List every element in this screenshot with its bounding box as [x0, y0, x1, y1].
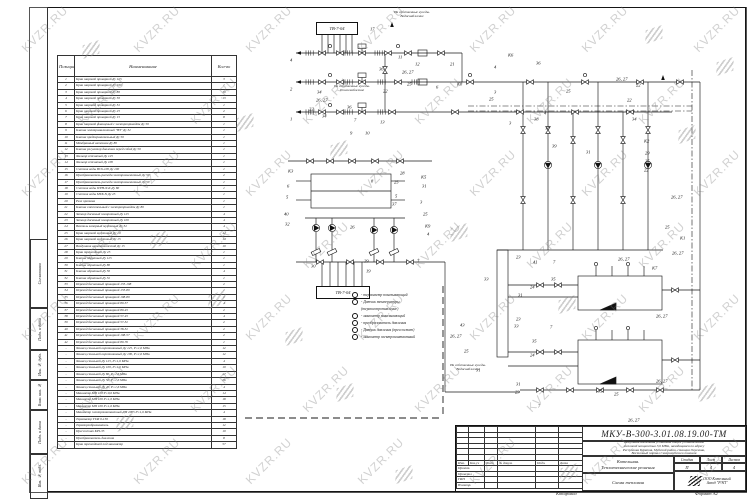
position-label: 25	[665, 225, 670, 230]
sheet-value: 4	[700, 463, 722, 471]
position-label: 26, 27	[316, 98, 327, 103]
position-label: 25	[423, 212, 428, 217]
position-label: 23	[516, 255, 521, 260]
position-label: 23	[516, 317, 521, 322]
position-label: 41	[533, 260, 538, 265]
position-label: 4	[544, 111, 546, 116]
footer-copied: Копировал	[556, 491, 577, 496]
position-label: 26, 27	[656, 379, 667, 384]
position-label: 35	[551, 277, 556, 282]
position-label: 9	[350, 131, 352, 136]
stage-header: Стадия	[674, 456, 700, 463]
position-label: 24	[530, 285, 535, 290]
position-label: 4	[427, 232, 429, 237]
tv-box-top: ТВ-7-04	[316, 22, 358, 35]
position-label: 6	[436, 85, 438, 90]
position-label: 25	[566, 89, 571, 94]
position-label: 35	[532, 339, 537, 344]
position-label: 33	[514, 324, 519, 329]
position-label: К8	[457, 82, 462, 87]
position-label: 31	[586, 150, 591, 155]
position-label: 34	[317, 90, 322, 95]
position-label: 13	[380, 120, 385, 125]
company-name: ООО Котельный Завод "РЭП"	[703, 477, 731, 486]
note-own-needs-water-top: На собственные нужды. Водоснабжение	[382, 11, 442, 18]
revision-stamp: Изм.Кол.учЛист№ докум.Подп.ДатаПроект.Пр…	[456, 426, 583, 489]
project-description: Модульная котельная установка общей уста…	[582, 441, 746, 456]
position-label: 7	[553, 260, 555, 265]
sheet-header: Лист	[700, 456, 722, 463]
position-label: 22	[644, 168, 649, 173]
position-label: 12	[415, 62, 420, 67]
legend-symbol-icon	[352, 313, 358, 319]
position-label: 11	[398, 55, 402, 60]
position-label: 36	[379, 67, 384, 72]
position-label: 25	[464, 349, 469, 354]
position-label: К9	[425, 224, 430, 229]
sheets-value: 4	[722, 463, 746, 471]
position-label: 25	[394, 180, 399, 185]
position-label: 23	[515, 390, 520, 395]
position-label: 3	[494, 90, 496, 95]
legend-item: - преобразователь давления	[352, 319, 472, 326]
position-label: 1	[290, 117, 292, 122]
position-label: 38	[534, 117, 539, 122]
position-label: 22	[627, 98, 632, 103]
position-label: 34	[322, 114, 327, 119]
position-label: 22	[636, 83, 641, 88]
position-label: 7	[550, 325, 552, 330]
position-label: 29	[645, 151, 650, 156]
position-label: 3	[420, 200, 422, 205]
legend-item: - манометр электроконтактный	[352, 333, 472, 340]
position-label: 30	[311, 264, 316, 269]
legend-symbol-icon	[352, 334, 358, 340]
position-label: 6	[287, 184, 289, 189]
position-label: 28	[400, 171, 405, 176]
legend-symbol-icon	[352, 299, 358, 305]
company-cell: ООО Котельный Завод "РЭП"	[674, 471, 746, 491]
instrument-legend: - термометр показывающий- Датчик темпера…	[352, 291, 472, 340]
sheets-header: Листов	[722, 456, 746, 463]
legend-item: - Датчик давления (прессостат)	[352, 326, 472, 333]
object-name: Котельная. Теплотехнические решения	[582, 456, 674, 473]
position-label: 26, 27	[656, 314, 667, 319]
legend-symbol-icon	[352, 327, 358, 333]
legend-symbol-icon	[352, 320, 358, 326]
position-label: 36	[536, 61, 541, 66]
position-label: К3	[288, 169, 293, 174]
position-label: 4	[494, 65, 496, 70]
position-label: 24	[530, 353, 535, 358]
position-label: 35	[598, 389, 603, 394]
position-label: 19	[366, 269, 371, 274]
stamp-signature-row: Н.контр.	[457, 482, 583, 488]
drawing-sheet: СогласованоПодп. и датаИнв. № дубл.Взам.…	[0, 0, 750, 500]
position-label: 26, 27	[618, 257, 629, 262]
position-label: 25	[489, 97, 494, 102]
position-label: 22	[383, 89, 388, 94]
stage-value: П	[674, 463, 700, 471]
position-label: К5	[421, 175, 426, 180]
legend-item: - манометр показывающий	[352, 312, 472, 319]
position-label: 36	[347, 105, 352, 110]
position-label: 10	[365, 131, 370, 136]
position-label: К6	[508, 53, 513, 58]
note-own-needs-heat: На собственные нужды. Теплоснабжение	[326, 85, 378, 92]
title-block: Изм.Кол.учЛист№ докум.Подп.ДатаПроект.Пр…	[455, 425, 747, 492]
position-label: 22	[309, 107, 314, 112]
position-label: 34	[632, 117, 637, 122]
position-label: 29	[364, 259, 369, 264]
position-label: 7	[354, 118, 356, 123]
position-label: 18	[545, 126, 550, 131]
position-label: 31	[476, 368, 481, 373]
position-label: 26, 27	[616, 77, 627, 82]
legend-item: - Датчик температуры	[352, 298, 472, 305]
position-label: 7	[417, 259, 419, 264]
position-label: 31	[516, 382, 521, 387]
position-label: 26, 27	[628, 418, 639, 423]
note-own-needs-water-bottom: На собственные нужды. Водоснабжение	[440, 364, 496, 371]
position-label: 31	[422, 184, 427, 189]
legend-symbol-icon	[352, 292, 358, 298]
sheet-title: Схема тепловая	[582, 473, 674, 491]
position-label: 26, 27	[402, 70, 413, 75]
position-label: 3	[509, 121, 511, 126]
footer-format: Формат А2	[695, 491, 718, 496]
position-label: 26	[350, 225, 355, 230]
position-label: 40	[284, 212, 289, 217]
position-label: К7	[652, 266, 657, 271]
position-label: 26, 27	[671, 195, 682, 200]
position-label: 37	[392, 202, 397, 207]
position-label: 25	[407, 82, 412, 87]
position-label: 26, 27	[672, 251, 683, 256]
position-label: 25	[614, 392, 619, 397]
doc-number: МКУ-В-300-3.01.08.19.00-ТМ	[582, 426, 746, 441]
position-label: 17	[370, 27, 375, 32]
position-label: К1	[680, 236, 685, 241]
position-label: 39	[552, 144, 557, 149]
position-label: 31	[518, 293, 523, 298]
position-label: 32	[285, 222, 290, 227]
legend-item: (термосопротивление)	[352, 305, 472, 312]
company-logo-icon	[688, 476, 703, 486]
legend-item: - термометр показывающий	[352, 291, 472, 298]
position-label: 4	[290, 58, 292, 63]
position-label: К2	[644, 139, 649, 144]
position-label: 7	[538, 404, 540, 409]
position-label: 5	[286, 195, 288, 200]
position-label: 21	[450, 62, 455, 67]
position-label: 8	[371, 179, 373, 184]
position-label: 25	[645, 159, 650, 164]
position-label: 33	[484, 277, 489, 282]
position-label: 5	[395, 194, 397, 199]
position-label: 2	[290, 87, 292, 92]
